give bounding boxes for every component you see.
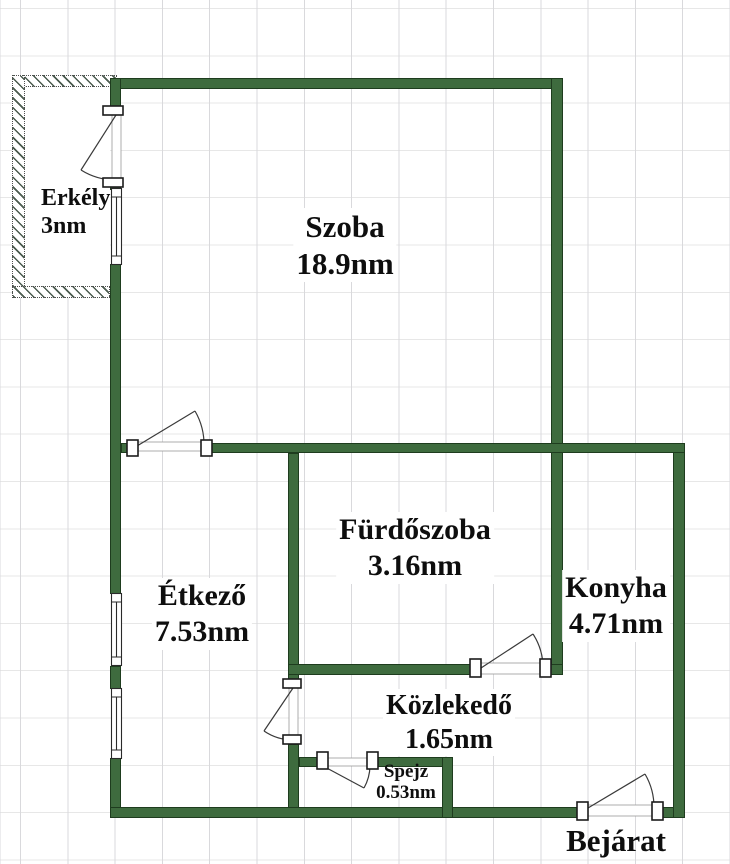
door-jamb xyxy=(103,106,123,115)
door-jamb xyxy=(127,440,138,456)
etkezo-door xyxy=(264,679,301,744)
door-jamb xyxy=(283,735,301,744)
balcony-door xyxy=(81,106,123,187)
room-label-szoba: Szoba 18.9nm xyxy=(293,208,396,282)
furdoszoba-door xyxy=(470,634,551,677)
door-leaf xyxy=(81,115,116,170)
room-label-furdoszoba: Fürdőszoba 3.16nm xyxy=(336,512,494,584)
room-label-erkely: Erkély 3nm xyxy=(38,184,113,240)
door-threshold xyxy=(289,688,298,735)
door-leaf xyxy=(588,774,645,808)
szoba-door xyxy=(127,411,212,456)
door-threshold xyxy=(112,115,121,178)
room-name: Étkező xyxy=(155,578,249,614)
room-name: Közlekedő xyxy=(386,689,512,723)
room-label-etkezo: Étkező 7.53nm xyxy=(152,578,252,650)
door-threshold xyxy=(588,805,652,816)
room-area: 18.9nm xyxy=(296,245,393,282)
door-jamb xyxy=(317,752,328,769)
room-label-konyha: Konyha 4.71nm xyxy=(562,570,670,642)
door-jamb xyxy=(201,440,212,456)
room-area: 0.53nm xyxy=(376,783,436,804)
door-threshold xyxy=(328,758,367,766)
door-jamb xyxy=(470,659,481,677)
room-name: Fürdőszoba xyxy=(339,512,491,548)
room-label-kozlekedo: Közlekedő 1.65nm xyxy=(383,689,515,756)
dining-window-upper xyxy=(112,594,122,666)
room-area: 3nm xyxy=(41,212,110,240)
room-area: 3.16nm xyxy=(339,548,491,584)
room-label-spejz: Spejz 0.53nm xyxy=(373,762,439,803)
room-name: Szoba xyxy=(296,208,393,245)
entrance-label: Bejárat xyxy=(563,822,669,859)
door-jamb xyxy=(652,802,663,820)
door-threshold xyxy=(481,663,540,674)
door-leaf xyxy=(137,411,195,446)
room-area: 4.71nm xyxy=(565,606,667,642)
room-area: 7.53nm xyxy=(155,614,249,650)
room-name: Erkély xyxy=(41,184,110,212)
dining-window-lower xyxy=(112,689,122,759)
door-jamb xyxy=(540,659,551,677)
bejarat-door xyxy=(577,774,663,820)
door-threshold xyxy=(138,442,201,451)
room-name: Konyha xyxy=(565,570,667,606)
room-name: Spejz xyxy=(376,762,436,783)
door-leaf xyxy=(323,766,364,788)
door-window-overlay xyxy=(0,0,730,864)
door-jamb xyxy=(283,679,301,688)
floor-plan: Erkély 3nm Szoba 18.9nm Étkező 7.53nm Fü… xyxy=(0,0,730,864)
door-jamb xyxy=(577,802,588,820)
spejz-door xyxy=(317,752,378,788)
room-area: 1.65nm xyxy=(386,723,512,757)
